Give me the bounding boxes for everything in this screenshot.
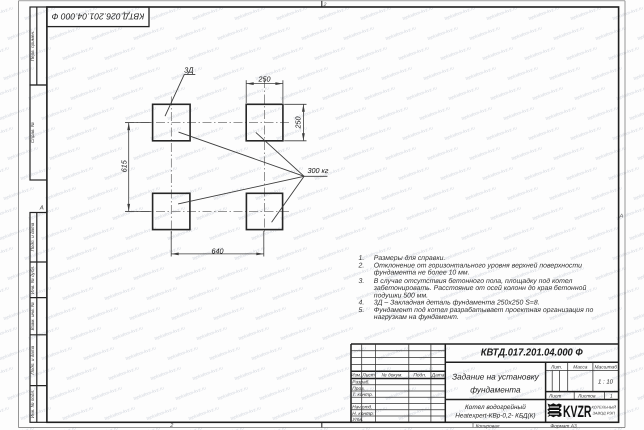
svg-text:2: 2: [169, 423, 173, 429]
svg-text:615: 615: [120, 159, 129, 172]
svg-text:Дата: Дата: [431, 373, 445, 379]
svg-text:В случае отсутствия бетонного: В случае отсутствия бетонного пола, площ…: [374, 277, 573, 285]
svg-text:Пров.: Пров.: [352, 386, 365, 392]
svg-text:Heatexpert-КВр-0,2- КБД(К): Heatexpert-КВр-0,2- КБД(К): [455, 412, 535, 419]
svg-text:3Д: 3Д: [184, 66, 193, 75]
svg-text:KVZR: KVZR: [563, 403, 592, 421]
svg-text:фундамента: фундамента: [470, 385, 521, 394]
svg-text:Подп.: Подп.: [413, 373, 426, 379]
svg-text:А: А: [39, 205, 44, 212]
svg-text:640: 640: [212, 246, 224, 255]
svg-text:фундамента не более 10 мм.: фундамента не более 10 мм.: [374, 269, 470, 277]
svg-text:Лист: Лист: [361, 373, 374, 379]
svg-text:нагрузкам на фундамент.: нагрузкам на фундамент.: [374, 314, 459, 321]
svg-text:№ докум.: № докум.: [382, 373, 403, 379]
svg-text:1 : 10: 1 : 10: [598, 378, 614, 385]
svg-text:250: 250: [294, 117, 303, 130]
svg-text:Фундамент под котел разрабатыв: Фундамент под котел разрабатывает проект…: [374, 306, 594, 314]
svg-text:Справ. №: Справ. №: [30, 122, 35, 143]
svg-text:Т. контр.: Т. контр.: [352, 392, 373, 398]
svg-text:Копировал: Копировал: [476, 423, 500, 429]
svg-text:Задание на установку: Задание на установку: [452, 373, 540, 382]
svg-text:Размеры для справки.: Размеры для справки.: [374, 255, 446, 262]
svg-text:Формат А3: Формат А3: [550, 423, 577, 429]
svg-text:Лист: Лист: [548, 393, 561, 399]
svg-text:подушки 500 мм.: подушки 500 мм.: [374, 292, 428, 299]
svg-text:300 кг: 300 кг: [308, 166, 329, 175]
svg-text:Перв. примен.: Перв. примен.: [30, 31, 35, 62]
svg-text:Нач.отд.: Нач.отд.: [352, 405, 372, 411]
svg-text:Подп. и дата: Подп. и дата: [30, 345, 35, 374]
svg-text:Утв.: Утв.: [352, 417, 363, 423]
svg-text:Изм.: Изм.: [351, 373, 361, 379]
svg-text:4.: 4.: [359, 300, 365, 307]
svg-text:3.: 3.: [359, 278, 365, 285]
svg-text:забетонировать. Расстояние от: забетонировать. Расстояние от осей колон…: [373, 284, 587, 292]
svg-text:КВТД.026.201.04.000 Ф: КВТД.026.201.04.000 Ф: [51, 12, 144, 22]
svg-text:2.: 2.: [358, 262, 365, 269]
svg-text:Инв. № дубл.: Инв. № дубл.: [30, 266, 35, 294]
svg-text:1.: 1.: [359, 255, 365, 262]
svg-text:Листов: Листов: [577, 393, 596, 399]
svg-text:Отклонение от горизонтального: Отклонение от горизонтального уровня вер…: [374, 261, 582, 269]
svg-text:Масштаб: Масштаб: [594, 364, 617, 370]
svg-text:ЗАВОД РЭП: ЗАВОД РЭП: [593, 410, 616, 415]
svg-text:1: 1: [610, 393, 613, 399]
svg-text:Взам. инв. №: Взам. инв. №: [30, 302, 35, 330]
svg-text:КОТЕЛЬНЫЙ: КОТЕЛЬНЫЙ: [592, 405, 617, 410]
svg-text:Котел водогрейный: Котел водогрейный: [465, 404, 526, 411]
svg-text:Лит.: Лит.: [550, 364, 562, 370]
svg-text:250: 250: [258, 75, 271, 84]
svg-text:Разраб.: Разраб.: [352, 380, 369, 386]
svg-text:3Д – Закладная деталь фундамен: 3Д – Закладная деталь фундамента 250х250…: [374, 300, 540, 307]
svg-text:Инв. № подл.: Инв. № подл.: [30, 390, 35, 419]
svg-text:Подп. и дата: Подп. и дата: [30, 222, 35, 251]
svg-text:Масса: Масса: [573, 364, 588, 370]
svg-text:5.: 5.: [359, 307, 365, 314]
svg-text:КВТД.017.201.04.000 Ф: КВТД.017.201.04.000 Ф: [481, 348, 583, 359]
svg-text:Н. контр.: Н. контр.: [352, 411, 374, 417]
